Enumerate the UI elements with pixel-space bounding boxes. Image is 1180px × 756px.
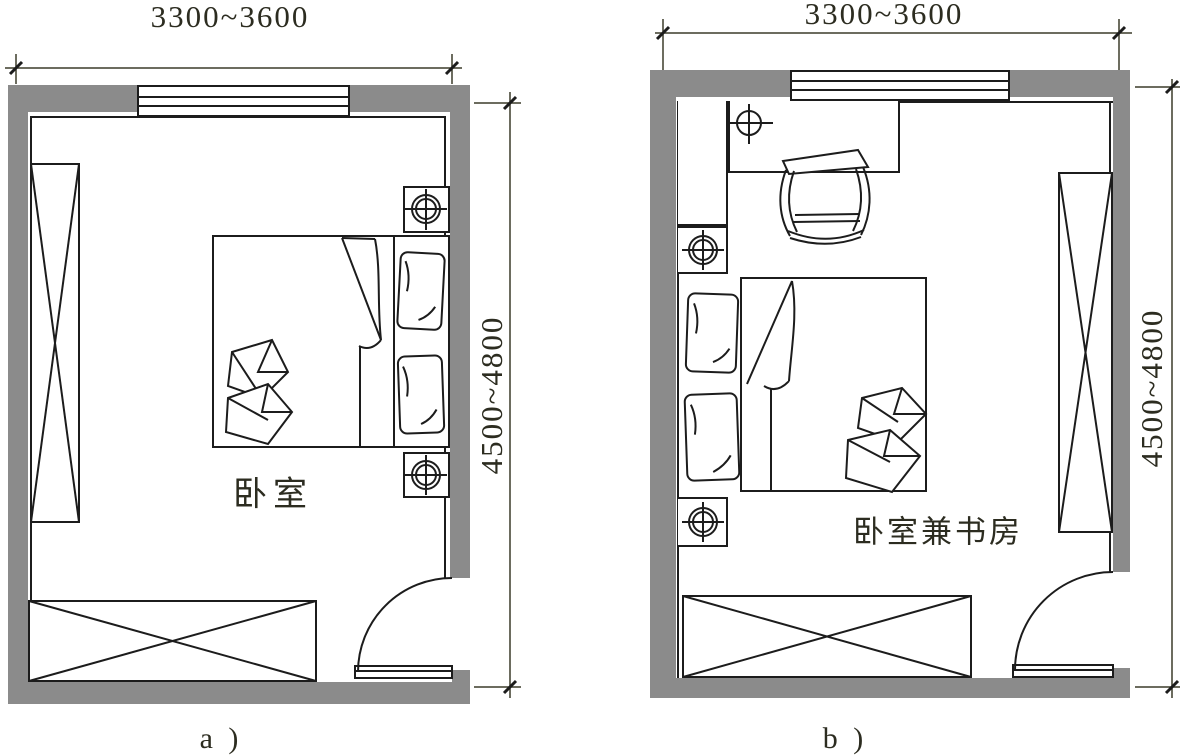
door	[355, 578, 452, 678]
wall-right	[450, 85, 470, 578]
wall-left	[8, 85, 28, 704]
door-swing-arc	[358, 578, 452, 672]
double-bed	[740, 277, 927, 492]
wall-inner-face	[30, 116, 446, 118]
height-dimension-label-a: 4500~4800	[474, 316, 510, 475]
room-label-a: 卧室	[233, 467, 313, 516]
desk	[728, 101, 900, 173]
window	[137, 85, 350, 117]
wall-bottom	[650, 678, 1130, 698]
side-counter	[678, 101, 728, 226]
width-dimension-label-b: 3300~3600	[805, 0, 964, 32]
plan-caption-a: a )	[200, 722, 243, 756]
door	[1013, 572, 1113, 677]
double-bed	[212, 235, 450, 448]
wardrobe	[1058, 172, 1113, 533]
nightstand	[403, 452, 450, 498]
plan-caption-b: b )	[823, 722, 868, 756]
wall-right	[1113, 70, 1130, 572]
window-glass-line	[792, 80, 1008, 82]
nightstand	[403, 186, 450, 233]
floor-plan-figure: 3300~3600 3300~3600 4500~4800 4500~4800 …	[0, 0, 1180, 756]
wall-top	[1010, 70, 1130, 97]
low-cabinet	[682, 595, 972, 678]
window	[790, 70, 1010, 101]
height-dimension-label-b: 4500~4800	[1134, 309, 1170, 468]
width-dimension-label-a: 3300~3600	[151, 0, 310, 35]
wall-bottom	[8, 682, 470, 704]
window-glass-line	[139, 105, 348, 107]
window-glass-line	[139, 96, 348, 98]
window-glass-line	[792, 89, 1008, 91]
low-cabinet	[28, 600, 317, 682]
door-swing-arc	[1015, 572, 1113, 670]
pillow	[685, 293, 740, 481]
nightstand	[678, 497, 728, 547]
nightstand	[678, 226, 728, 274]
room-label-b: 卧室兼书房	[853, 507, 1023, 552]
wall-left	[650, 70, 676, 698]
wardrobe	[30, 163, 80, 523]
